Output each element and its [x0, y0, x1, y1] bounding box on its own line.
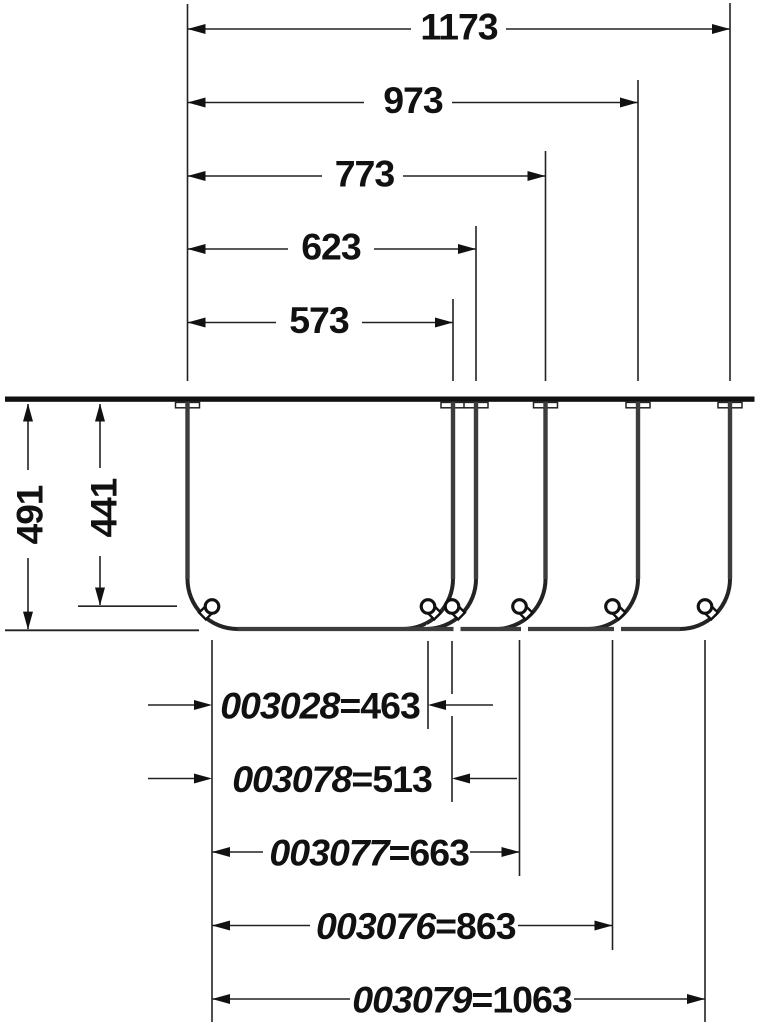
svg-text:973: 973: [383, 79, 443, 121]
svg-text:491: 491: [10, 485, 51, 544]
svg-text:003077=663: 003077=663: [269, 832, 469, 874]
svg-text:573: 573: [289, 299, 349, 341]
svg-text:003079=1063: 003079=1063: [352, 979, 572, 1021]
svg-text:1173: 1173: [420, 6, 497, 48]
svg-text:623: 623: [301, 226, 361, 268]
svg-text:003028=463: 003028=463: [220, 685, 420, 727]
svg-text:773: 773: [335, 153, 395, 195]
svg-text:003078=513: 003078=513: [232, 758, 432, 800]
svg-text:441: 441: [84, 478, 125, 537]
svg-text:003076=863: 003076=863: [316, 905, 516, 947]
